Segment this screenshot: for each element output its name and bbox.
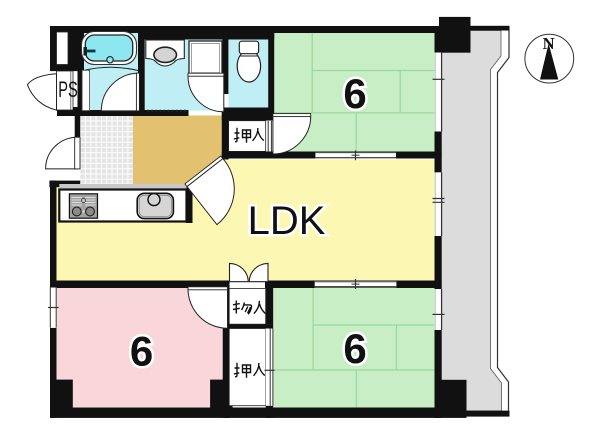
svg-text:N: N <box>543 34 555 53</box>
svg-text:6: 6 <box>130 328 153 375</box>
svg-text:PS: PS <box>58 77 78 102</box>
svg-text:6: 6 <box>343 325 366 372</box>
svg-text:6: 6 <box>343 70 366 117</box>
svg-text:LDK: LDK <box>248 199 326 243</box>
